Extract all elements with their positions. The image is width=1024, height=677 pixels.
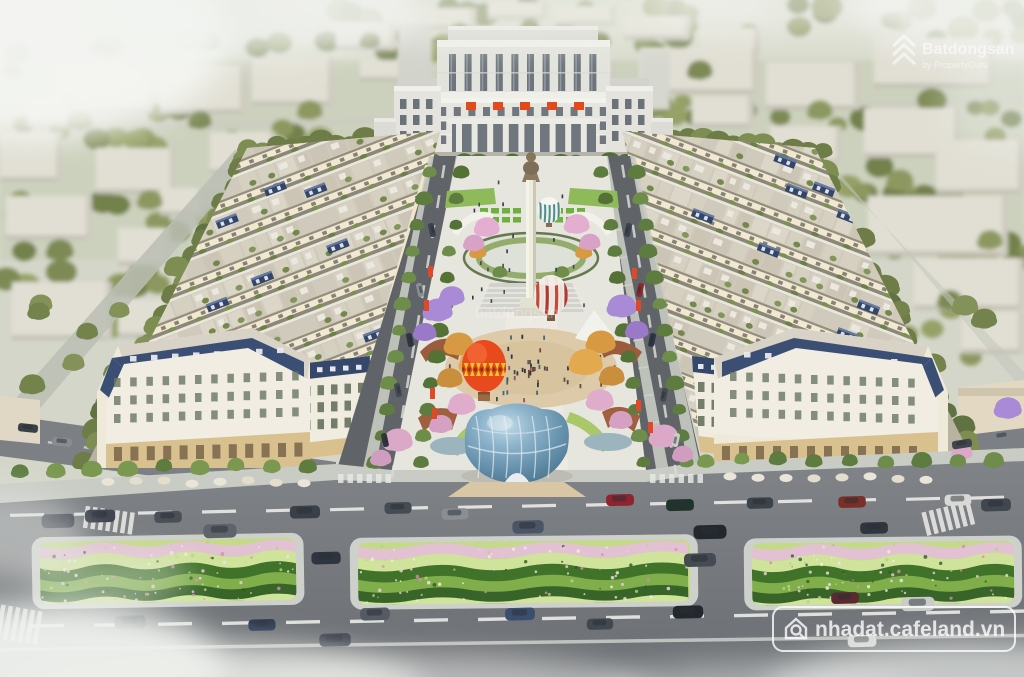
svg-text:nhadat.cafeland.vn: nhadat.cafeland.vn bbox=[815, 618, 1005, 641]
svg-text:by PropertyGuru: by PropertyGuru bbox=[922, 60, 988, 70]
svg-text:batdongsan: batdongsan bbox=[475, 305, 559, 322]
svg-text:Batdongsan: Batdongsan bbox=[922, 41, 1014, 58]
